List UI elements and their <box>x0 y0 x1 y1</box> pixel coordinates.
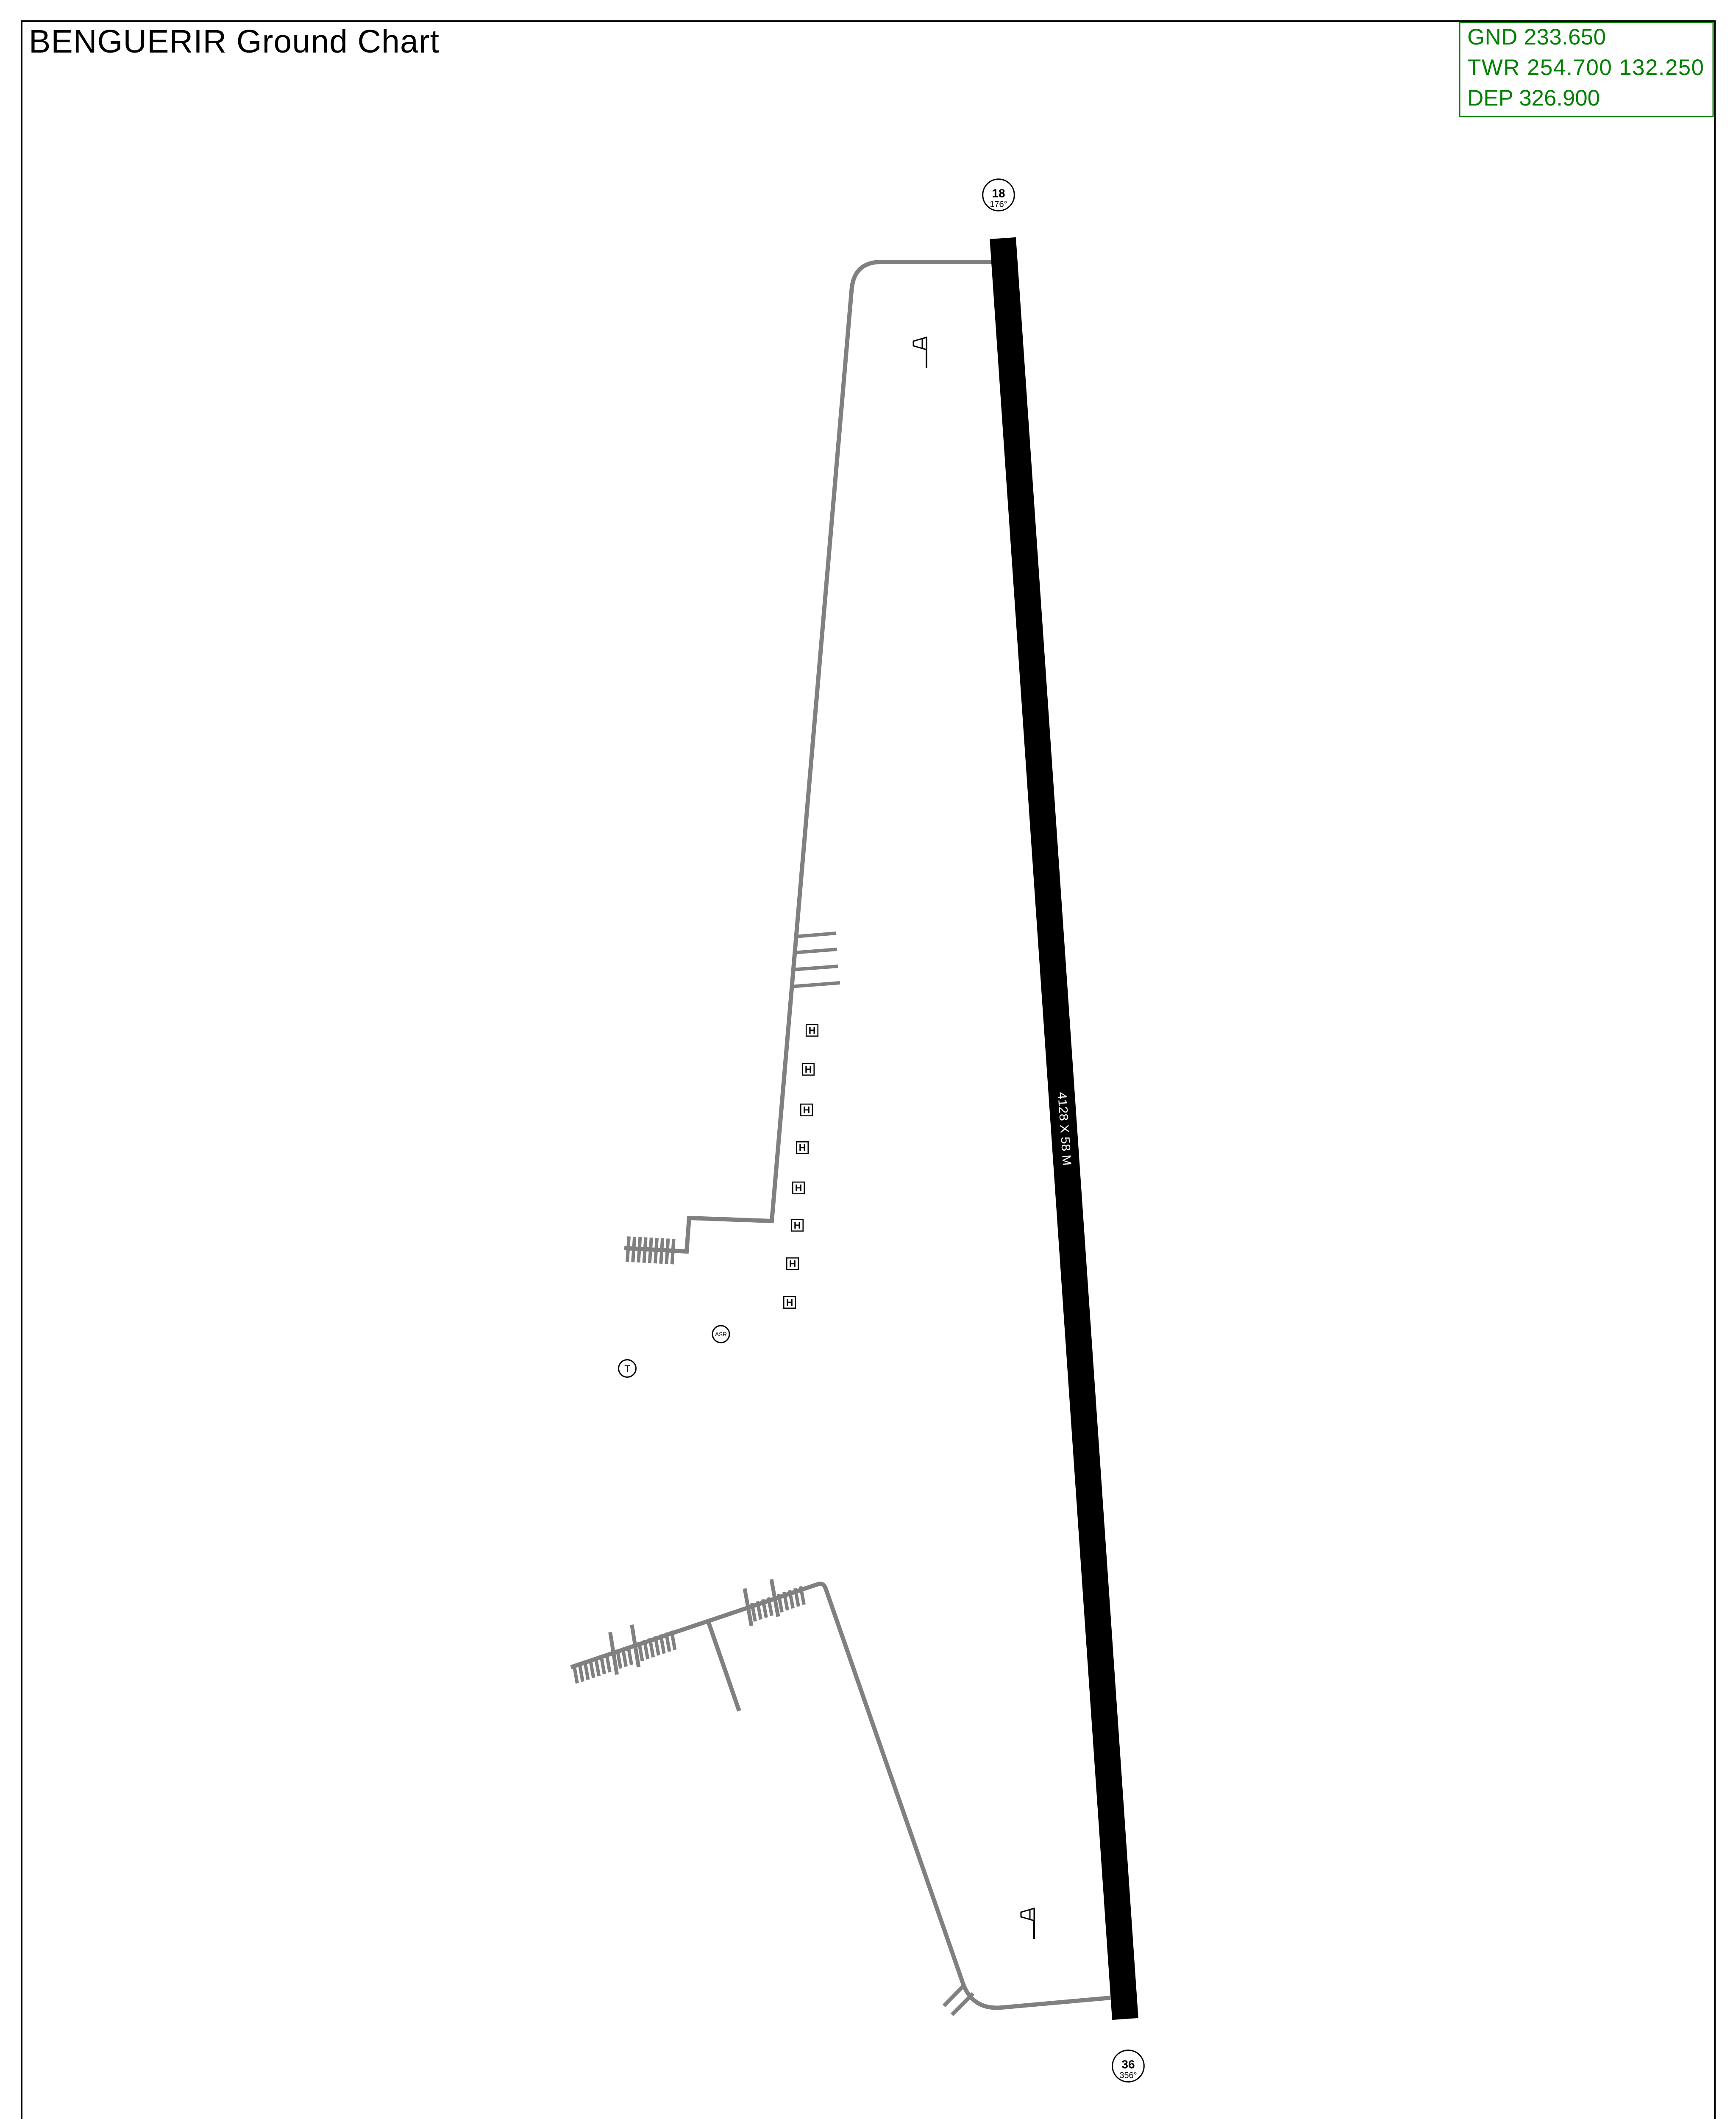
svg-text:GND 233.650: GND 233.650 <box>1467 25 1606 50</box>
svg-text:H: H <box>795 1182 802 1193</box>
svg-text:H: H <box>786 1297 793 1308</box>
svg-text:H: H <box>803 1104 810 1115</box>
svg-text:H: H <box>794 1220 801 1231</box>
svg-text:ASR: ASR <box>715 1331 727 1338</box>
svg-text:36: 36 <box>1121 2058 1135 2071</box>
svg-text:T: T <box>624 1363 630 1374</box>
svg-text:H: H <box>799 1142 806 1153</box>
svg-text:176°: 176° <box>990 200 1007 209</box>
svg-text:H: H <box>789 1258 796 1269</box>
svg-text:H: H <box>805 1064 812 1075</box>
svg-text:TWR 254.700 132.250: TWR 254.700 132.250 <box>1467 55 1704 80</box>
svg-text:356°: 356° <box>1119 2071 1137 2080</box>
svg-text:DEP 326.900: DEP 326.900 <box>1467 86 1600 111</box>
svg-text:H: H <box>809 1025 816 1036</box>
svg-text:BENGUERIR Ground Chart: BENGUERIR Ground Chart <box>29 23 439 60</box>
svg-text:18: 18 <box>992 187 1005 200</box>
